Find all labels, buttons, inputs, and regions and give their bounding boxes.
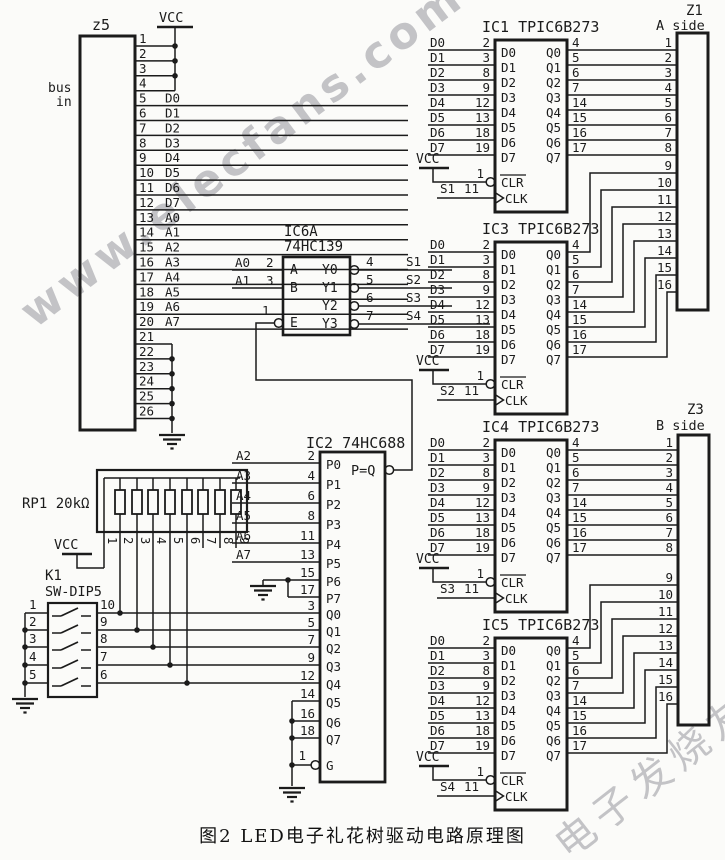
pin-number: 4 xyxy=(572,633,580,648)
port-label: Q4 xyxy=(546,703,561,718)
net-label: D4 xyxy=(430,693,445,708)
pin-number: 18 xyxy=(475,723,490,738)
port-label: Q5 xyxy=(546,322,561,337)
pin-number: 10 xyxy=(139,165,154,180)
pin-number: 2 xyxy=(121,537,135,544)
pin-number: 7 xyxy=(139,120,147,135)
pin-number: 8 xyxy=(482,267,490,282)
junction-dot xyxy=(289,735,295,741)
pin-number: 7 xyxy=(665,525,673,540)
net-label: D6 xyxy=(430,525,445,540)
resistor-body xyxy=(115,490,125,514)
port-label: Y2 xyxy=(322,299,338,314)
pin-number: 2 xyxy=(266,255,274,270)
pin-number: 12 xyxy=(475,693,490,708)
pin-number: 16 xyxy=(572,327,587,342)
pin-number: 11 xyxy=(464,779,479,794)
net-label: D4 xyxy=(430,495,445,510)
pin-number: 2 xyxy=(29,614,37,629)
net-label: D2 xyxy=(165,120,180,135)
port-label: Q4 xyxy=(546,505,561,520)
pin-number: 3 xyxy=(482,648,490,663)
pin-number: 17 xyxy=(572,738,587,753)
pin-number: 9 xyxy=(482,678,490,693)
pin-number: 13 xyxy=(658,638,673,653)
pin-number: 11 xyxy=(464,383,479,398)
net-label: A3 xyxy=(165,255,180,270)
port-label: D1 xyxy=(501,60,516,75)
schematic-page: www.elecfans.com 电子发烧友 z5busin12345D06D1… xyxy=(0,0,725,860)
pin-number: 15 xyxy=(572,510,587,525)
port-label: Q6 xyxy=(326,715,341,730)
pin-number: 11 xyxy=(300,528,315,543)
note-label: bus xyxy=(48,81,71,96)
pin-number: 8 xyxy=(482,465,490,480)
switch-lever-icon xyxy=(61,642,78,650)
pin-number: 3 xyxy=(139,61,147,76)
junction-dot xyxy=(167,662,173,668)
junction-dot xyxy=(169,356,175,362)
ref-label: IC2 74HC688 xyxy=(306,434,405,452)
schematic-canvas: z5busin12345D06D17D28D39D410D511D612D713… xyxy=(0,0,725,860)
pin-number: 18 xyxy=(300,723,315,738)
junction-dot xyxy=(22,662,28,668)
pin-number: 2 xyxy=(482,633,490,648)
ref-label: IC4 TPIC6B273 xyxy=(482,418,599,436)
port-label: D7 xyxy=(501,352,516,367)
port-label: D7 xyxy=(501,748,516,763)
net-label: S2 xyxy=(440,383,455,398)
port-label: Y0 xyxy=(322,263,338,278)
pin-number: 7 xyxy=(664,125,672,140)
vcc-label: VCC xyxy=(159,10,183,26)
port-label: A xyxy=(290,263,298,278)
port-label: Q6 xyxy=(546,535,561,550)
pin-number: 2 xyxy=(482,435,490,450)
net-label: D0 xyxy=(430,35,445,50)
net-label: S1 xyxy=(440,181,455,196)
net-label: D6 xyxy=(430,723,445,738)
pin-number: 2 xyxy=(139,46,147,61)
pin-number: 9 xyxy=(665,570,673,585)
port-label: D0 xyxy=(501,45,516,60)
port-label: Q0 xyxy=(546,247,561,262)
port-label: Q0 xyxy=(326,607,341,622)
pin-number: 3 xyxy=(266,273,274,288)
pin-number: 5 xyxy=(572,50,580,65)
pin-number: 18 xyxy=(475,525,490,540)
pin-number: 9 xyxy=(482,480,490,495)
vcc-label: VCC xyxy=(416,750,439,765)
pin-number: 25 xyxy=(139,389,154,404)
port-label: Q2 xyxy=(546,277,561,292)
pin-number: 5 xyxy=(572,252,580,267)
port-label: Q2 xyxy=(546,673,561,688)
port-label: Q4 xyxy=(546,307,561,322)
pin-number: 17 xyxy=(572,342,587,357)
figure-caption: 图2 LED电子礼花树驱动电路原理图 xyxy=(0,822,725,848)
pin-number: 15 xyxy=(300,565,315,580)
port-label: D5 xyxy=(501,120,516,135)
junction-dot xyxy=(169,371,175,377)
pin-number: 19 xyxy=(475,140,490,155)
junction-dot xyxy=(134,627,140,633)
net-label: A5 xyxy=(165,284,180,299)
port-label: Y1 xyxy=(322,281,338,296)
pin-number: 10 xyxy=(100,597,115,612)
port-label: Y3 xyxy=(322,317,338,332)
port-label: Q1 xyxy=(546,460,561,475)
pin-number: 14 xyxy=(139,225,154,240)
pin-number: 8 xyxy=(100,631,108,646)
pin-number: 4 xyxy=(665,480,673,495)
resistor-body xyxy=(132,490,142,514)
resistor-body xyxy=(215,490,225,514)
pin-number: 20 xyxy=(139,314,154,329)
junction-dot xyxy=(172,43,178,49)
port-label: D0 xyxy=(501,643,516,658)
net-label: D0 xyxy=(430,237,445,252)
port-label: Q2 xyxy=(546,475,561,490)
pin-number: 15 xyxy=(139,240,154,255)
port-label: D5 xyxy=(501,322,516,337)
ref-label: RP1 20kΩ xyxy=(22,496,89,512)
pin-number: 16 xyxy=(139,255,154,270)
pin-number: 1 xyxy=(476,566,484,581)
net-label: D4 xyxy=(165,150,180,165)
connector-z1-body xyxy=(677,33,708,310)
net-label: D5 xyxy=(430,708,445,723)
port-label: Q0 xyxy=(546,45,561,60)
port-label: D5 xyxy=(501,718,516,733)
port-label: D0 xyxy=(501,445,516,460)
pin-number: 8 xyxy=(665,540,673,555)
port-label: Q4 xyxy=(326,677,341,692)
pin-number: 11 xyxy=(464,181,479,196)
net-label: S1 xyxy=(406,254,421,269)
port-label: Q1 xyxy=(326,624,341,639)
net-label: D3 xyxy=(430,80,445,95)
net-label: D6 xyxy=(430,327,445,342)
port-label: Q5 xyxy=(546,120,561,135)
junction-dot xyxy=(22,644,28,650)
pin-number: 14 xyxy=(572,297,587,312)
pin-number: 7 xyxy=(100,649,108,664)
ref-label: Z1 xyxy=(686,3,703,19)
pin-number: 26 xyxy=(139,404,154,419)
port-label: D4 xyxy=(501,505,516,520)
net-label: A1 xyxy=(235,273,250,288)
net-label: D2 xyxy=(430,267,445,282)
pin-number: 15 xyxy=(657,260,672,275)
junction-dot xyxy=(172,73,178,79)
ref-label: Z3 xyxy=(687,402,704,418)
net-label: D3 xyxy=(430,678,445,693)
pin-number: 5 xyxy=(366,272,374,287)
pin-number: 1 xyxy=(105,537,119,544)
ref-label: IC3 TPIC6B273 xyxy=(482,220,599,238)
ref-label: z5 xyxy=(92,16,110,34)
port-label: Q0 xyxy=(546,445,561,460)
pin-number: 5 xyxy=(29,667,37,682)
pin-number: 9 xyxy=(237,537,251,544)
vcc-label: VCC xyxy=(416,354,439,369)
pin-number: 8 xyxy=(139,135,147,150)
port-label: P7 xyxy=(326,591,341,606)
junction-dot xyxy=(22,627,28,633)
pin-number: 17 xyxy=(300,582,315,597)
pin-number: 14 xyxy=(300,686,315,701)
port-label: D3 xyxy=(501,688,516,703)
pin-number: 24 xyxy=(139,374,154,389)
port-label: D6 xyxy=(501,535,516,550)
net-label: D3 xyxy=(165,135,180,150)
port-label: B xyxy=(290,281,298,296)
net-label: D0 xyxy=(165,91,180,106)
pin-number: 13 xyxy=(475,312,490,327)
pin-number: 4 xyxy=(366,254,374,269)
port-label: Q5 xyxy=(326,695,341,710)
pin-number: 17 xyxy=(572,140,587,155)
net-label: D2 xyxy=(430,465,445,480)
ref-label: IC1 TPIC6B273 xyxy=(482,18,599,36)
net-label: D4 xyxy=(430,297,445,312)
net-label: A4 xyxy=(165,269,180,284)
net-label: D6 xyxy=(430,125,445,140)
net-label: D2 xyxy=(430,663,445,678)
net-label: D1 xyxy=(430,648,445,663)
pin-number: 6 xyxy=(572,65,580,80)
port-label: D2 xyxy=(501,475,516,490)
net-label: D3 xyxy=(430,282,445,297)
ref-label: IC5 TPIC6B273 xyxy=(482,616,599,634)
port-label: D4 xyxy=(501,105,516,120)
pin-number: 16 xyxy=(572,125,587,140)
port-label: Q1 xyxy=(546,262,561,277)
port-label: D3 xyxy=(501,490,516,505)
pin-number: 12 xyxy=(658,621,673,636)
pin-number: 3 xyxy=(138,537,152,544)
port-label: D7 xyxy=(501,550,516,565)
port-label: Q6 xyxy=(546,733,561,748)
net-label: A5 xyxy=(236,508,251,523)
port-label: Q7 xyxy=(326,732,341,747)
net-label: D0 xyxy=(430,435,445,450)
port-label: Q5 xyxy=(546,520,561,535)
pin-number: 12 xyxy=(139,195,154,210)
net-label: A1 xyxy=(165,225,180,240)
pin-number: 19 xyxy=(475,738,490,753)
port-label: D2 xyxy=(501,673,516,688)
pin-number: 4 xyxy=(572,237,580,252)
port-label: CLR xyxy=(501,377,524,392)
net-label: A0 xyxy=(235,255,250,270)
port-label: Q1 xyxy=(546,658,561,673)
port-label: D3 xyxy=(501,292,516,307)
port-label: D6 xyxy=(501,135,516,150)
net-label: D1 xyxy=(430,50,445,65)
switch-lever-icon xyxy=(61,625,78,633)
pin-number: 5 xyxy=(664,95,672,110)
resistor-body xyxy=(182,490,192,514)
pin-number: 7 xyxy=(307,632,315,647)
net-label: D5 xyxy=(165,165,180,180)
port-label: Q7 xyxy=(546,550,561,565)
pin-number: 15 xyxy=(572,110,587,125)
pin-number: 6 xyxy=(572,663,580,678)
switch-lever-icon xyxy=(61,608,78,616)
port-label: CLR xyxy=(501,175,524,190)
pin-number: 15 xyxy=(658,672,673,687)
pin-number: 1 xyxy=(476,764,484,779)
pin-number: 14 xyxy=(572,495,587,510)
pin-number: 5 xyxy=(307,615,315,630)
pin-number: 6 xyxy=(188,537,202,544)
port-label: P=Q xyxy=(351,463,375,479)
pin-number: 4 xyxy=(664,80,672,95)
pin-number: 9 xyxy=(100,614,108,629)
port-label: Q2 xyxy=(326,641,341,656)
junction-dot xyxy=(169,416,175,422)
net-label: S3 xyxy=(440,581,455,596)
pin-number: 13 xyxy=(475,708,490,723)
port-label: P5 xyxy=(326,556,341,571)
port-label: D6 xyxy=(501,733,516,748)
port-label: Q3 xyxy=(546,490,561,505)
pin-number: 16 xyxy=(572,525,587,540)
pin-number: 7 xyxy=(204,537,218,544)
pin-number: 16 xyxy=(657,277,672,292)
port-label: D4 xyxy=(501,307,516,322)
pin-number: 9 xyxy=(139,150,147,165)
pin-number: 7 xyxy=(366,308,374,323)
port-label: D2 xyxy=(501,277,516,292)
note-label: in xyxy=(56,95,72,110)
port-label: Q3 xyxy=(326,659,341,674)
pin-number: 15 xyxy=(572,708,587,723)
pin-number: 17 xyxy=(139,269,154,284)
net-label: D0 xyxy=(430,633,445,648)
junction-dot xyxy=(22,680,28,686)
pin-number: 14 xyxy=(658,655,673,670)
pin-number: 18 xyxy=(475,327,490,342)
pin-number: 10 xyxy=(658,587,673,602)
pin-number: 13 xyxy=(475,510,490,525)
pin-number: 18 xyxy=(139,284,154,299)
port-label: CLR xyxy=(501,575,524,590)
pin-number: 1 xyxy=(665,435,673,450)
pin-number: 9 xyxy=(482,282,490,297)
port-label: P6 xyxy=(326,574,341,589)
pin-number: 5 xyxy=(171,537,185,544)
port-label: Q1 xyxy=(546,60,561,75)
net-label: D2 xyxy=(430,65,445,80)
pin-number: 22 xyxy=(139,344,154,359)
pin-number: 12 xyxy=(475,495,490,510)
resistor-body xyxy=(148,490,158,514)
pin-number: 8 xyxy=(664,140,672,155)
pin-number: 4 xyxy=(572,435,580,450)
pin-number: 6 xyxy=(100,667,108,682)
port-label: Q6 xyxy=(546,135,561,150)
port-label: CLK xyxy=(505,591,528,606)
pin-number: 7 xyxy=(572,282,580,297)
pin-number: 7 xyxy=(572,678,580,693)
net-label: A7 xyxy=(236,547,251,562)
port-label: Q6 xyxy=(546,337,561,352)
pin-number: 6 xyxy=(572,465,580,480)
pin-number: 6 xyxy=(366,290,374,305)
port-label: Q4 xyxy=(546,105,561,120)
pin-number: 5 xyxy=(572,450,580,465)
resistor-body xyxy=(165,490,175,514)
junction-dot xyxy=(169,386,175,392)
port-label: Q7 xyxy=(546,150,561,165)
pin-number: 1 xyxy=(29,597,37,612)
net-label: D4 xyxy=(430,95,445,110)
port-label: G xyxy=(326,758,334,773)
pin-number: 11 xyxy=(464,581,479,596)
net-label: A6 xyxy=(165,299,180,314)
net-label: D6 xyxy=(165,180,180,195)
pin-number: 2 xyxy=(307,448,315,463)
net-label: D7 xyxy=(165,195,180,210)
net-label: A0 xyxy=(165,210,180,225)
pin-number: 2 xyxy=(664,50,672,65)
net-label: A2 xyxy=(165,240,180,255)
port-label: D6 xyxy=(501,337,516,352)
vcc-label: VCC xyxy=(416,552,439,567)
note-label: B side xyxy=(656,418,705,434)
pin-number: 14 xyxy=(572,95,587,110)
vcc-label: VCC xyxy=(416,152,439,167)
pin-number: 1 xyxy=(262,303,270,318)
port-label: D2 xyxy=(501,75,516,90)
pin-number: 6 xyxy=(664,110,672,125)
connector-z3-body xyxy=(678,435,709,725)
pin-number: 4 xyxy=(29,649,37,664)
pin-number: 3 xyxy=(665,465,673,480)
net-label: S4 xyxy=(440,779,455,794)
pin-number: 19 xyxy=(475,540,490,555)
port-label: CLK xyxy=(505,393,528,408)
ref-label: IC6A xyxy=(284,224,318,240)
port-label: D1 xyxy=(501,460,516,475)
pin-number: 3 xyxy=(482,252,490,267)
pin-number: 11 xyxy=(139,180,154,195)
port-label: P4 xyxy=(326,537,341,552)
pin-number: 6 xyxy=(572,267,580,282)
net-label: D1 xyxy=(165,106,180,121)
port-label: CLR xyxy=(501,773,524,788)
junction-dot xyxy=(169,401,175,407)
pin-number: 8 xyxy=(482,65,490,80)
pin-number: 8 xyxy=(221,537,235,544)
pin-number: 5 xyxy=(572,648,580,663)
pin-number: 13 xyxy=(475,110,490,125)
pin-number: 19 xyxy=(475,342,490,357)
port-label: D1 xyxy=(501,262,516,277)
pin-number: 1 xyxy=(664,35,672,50)
switch-lever-icon xyxy=(61,660,78,668)
pin-number: 6 xyxy=(307,488,315,503)
pin-number: 7 xyxy=(572,80,580,95)
pin-number: 3 xyxy=(307,598,315,613)
pin-number: 3 xyxy=(482,50,490,65)
pin-number: 12 xyxy=(300,668,315,683)
port-label: Q7 xyxy=(546,748,561,763)
port-label: Q3 xyxy=(546,90,561,105)
